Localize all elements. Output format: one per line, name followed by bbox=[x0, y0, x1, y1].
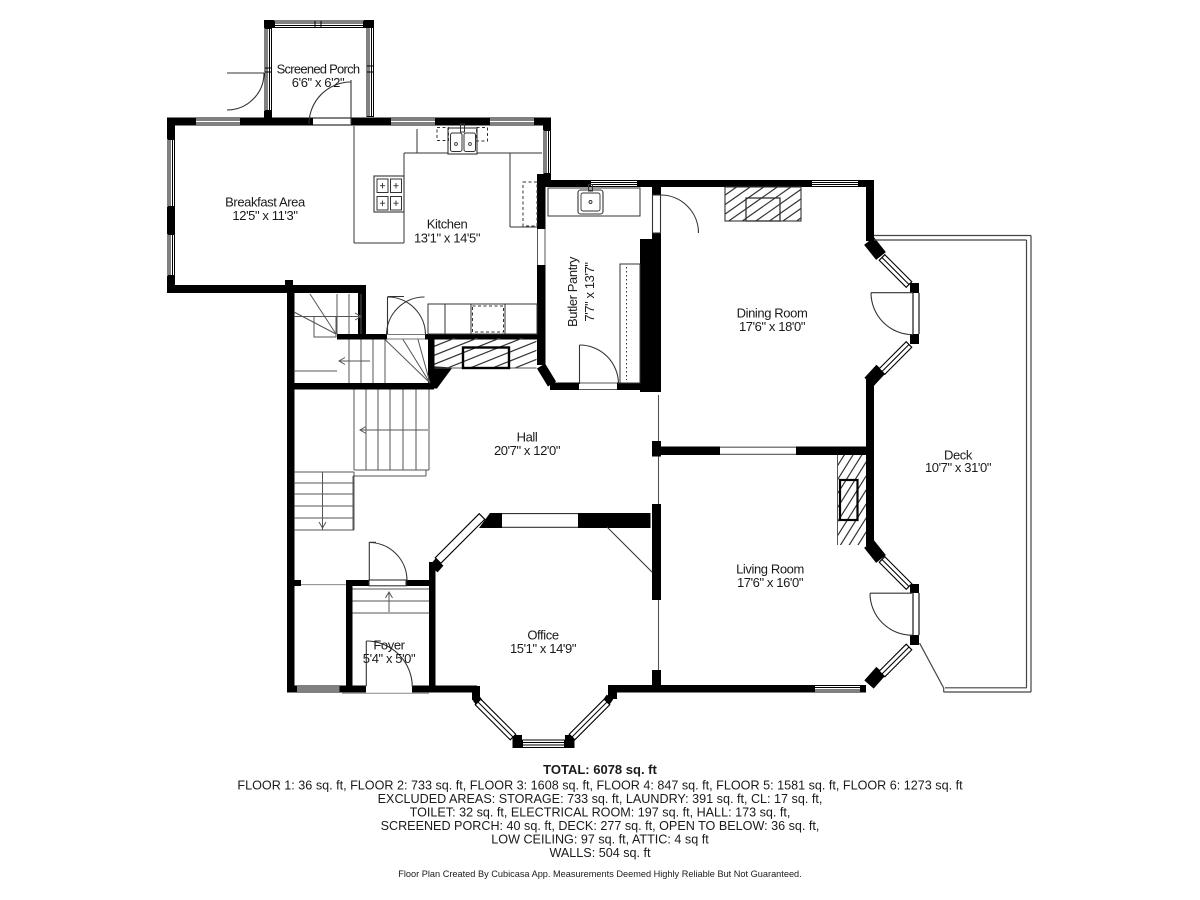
svg-text:SCREENED PORCH: 40 sq. ft, DEC: SCREENED PORCH: 40 sq. ft, DECK: 277 sq.… bbox=[381, 819, 820, 833]
svg-text:20'7" x 12'0": 20'7" x 12'0" bbox=[494, 443, 561, 458]
svg-text:12'5" x 11'3": 12'5" x 11'3" bbox=[232, 208, 298, 223]
svg-text:17'6" x 18'0": 17'6" x 18'0" bbox=[739, 319, 806, 334]
svg-text:13'1" x 14'5": 13'1" x 14'5" bbox=[414, 231, 481, 246]
svg-text:TOILET: 32 sq. ft, ELECTRICAL: TOILET: 32 sq. ft, ELECTRICAL ROOM: 197 … bbox=[410, 806, 791, 820]
svg-text:7'7" x 13'7": 7'7" x 13'7" bbox=[582, 262, 597, 322]
svg-text:FLOOR 1: 36 sq. ft, FLOOR 2: 7: FLOOR 1: 36 sq. ft, FLOOR 2: 733 sq. ft,… bbox=[237, 779, 963, 793]
svg-text:EXCLUDED AREAS: STORAGE: 733 s: EXCLUDED AREAS: STORAGE: 733 sq. ft, LAU… bbox=[378, 792, 823, 806]
svg-text:10'7" x 31'0": 10'7" x 31'0" bbox=[925, 460, 992, 475]
svg-text:17'6" x 16'0": 17'6" x 16'0" bbox=[737, 575, 804, 590]
svg-text:LOW CEILING: 97 sq. ft, ATTIC:: LOW CEILING: 97 sq. ft, ATTIC: 4 sq ft bbox=[491, 833, 709, 847]
svg-text:WALLS: 504 sq. ft: WALLS: 504 sq. ft bbox=[549, 846, 651, 860]
svg-text:6'6" x 6'2": 6'6" x 6'2" bbox=[292, 75, 345, 90]
svg-text:15'1" x 14'9": 15'1" x 14'9" bbox=[510, 641, 577, 656]
svg-text:Butler Pantry: Butler Pantry bbox=[565, 256, 580, 327]
svg-text:TOTAL: 6078 sq. ft: TOTAL: 6078 sq. ft bbox=[543, 762, 657, 777]
svg-text:Kitchen: Kitchen bbox=[427, 217, 468, 232]
svg-text:5'4" x 5'0": 5'4" x 5'0" bbox=[363, 651, 416, 666]
svg-text:Floor Plan Created By Cubicasa: Floor Plan Created By Cubicasa App. Meas… bbox=[398, 869, 801, 879]
